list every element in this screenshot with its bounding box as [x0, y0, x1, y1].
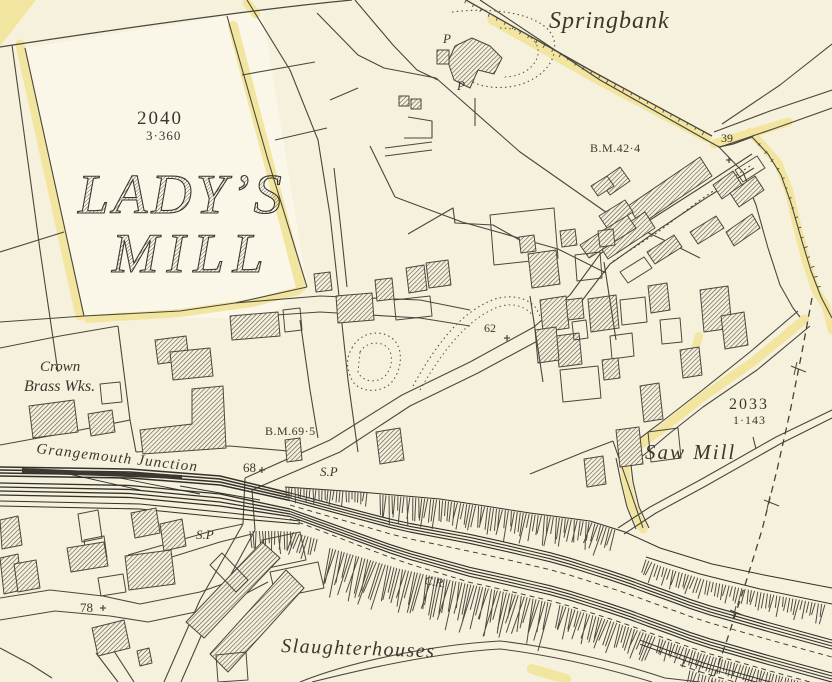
- svg-text:S.P: S.P: [320, 464, 338, 479]
- svg-text:MILL: MILL: [111, 223, 272, 285]
- svg-text:68: 68: [243, 460, 256, 475]
- svg-text:P: P: [442, 31, 451, 46]
- svg-text:B.M.42·4: B.M.42·4: [590, 141, 641, 155]
- svg-text:3·360: 3·360: [146, 128, 181, 143]
- svg-text:S.P: S.P: [196, 527, 214, 542]
- svg-text:LADY’S: LADY’S: [77, 164, 286, 226]
- svg-text:P: P: [456, 78, 465, 93]
- svg-text:Springbank: Springbank: [549, 8, 670, 34]
- svg-text:2040: 2040: [137, 108, 183, 129]
- svg-text:78: 78: [80, 600, 93, 615]
- svg-text:Brass Wks.: Brass Wks.: [24, 378, 95, 395]
- svg-text:B.M.69·5: B.M.69·5: [265, 424, 316, 438]
- svg-text:39: 39: [721, 131, 733, 145]
- svg-text:Crown: Crown: [40, 359, 80, 375]
- svg-text:Saw Mill: Saw Mill: [645, 440, 736, 464]
- svg-text:2033: 2033: [729, 396, 769, 413]
- svg-text:1·143: 1·143: [733, 413, 766, 427]
- svg-text:62: 62: [484, 321, 496, 335]
